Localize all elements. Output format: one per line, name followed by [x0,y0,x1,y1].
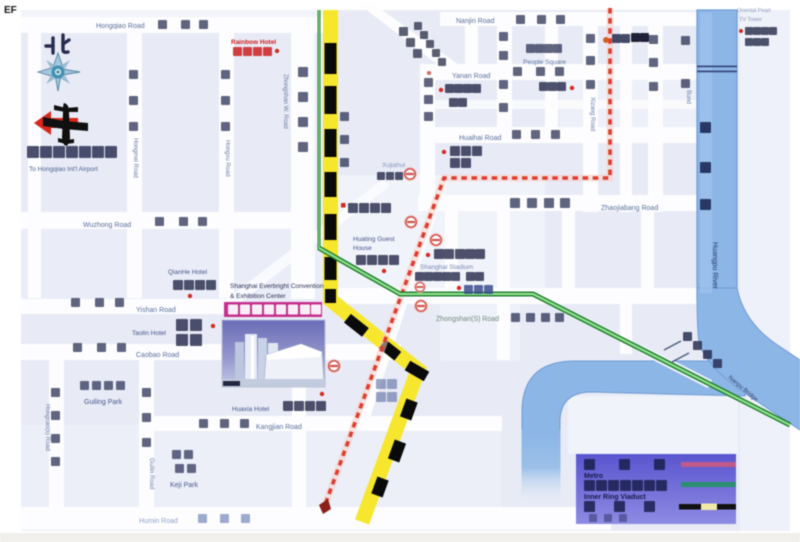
svg-text:Bund: Bund [685,90,691,104]
svg-text:EF: EF [4,5,17,16]
svg-text:Zhongshan(S) Road: Zhongshan(S) Road [436,316,499,323]
svg-text:Humin Road: Humin Road [139,518,178,525]
svg-text:Metro: Metro [584,473,603,480]
svg-text:Kangjian Road: Kangjian Road [256,424,302,431]
svg-text:Taolin Hotel: Taolin Hotel [132,330,167,337]
svg-text:Caobao Road: Caobao Road [136,352,179,359]
svg-text:Xizang Road: Xizang Road [589,97,595,131]
svg-text:Guilin Road: Guilin Road [148,458,154,489]
svg-text:Huangpu River: Huangpu River [711,242,718,289]
svg-text:Shanghai Stadium: Shanghai Stadium [420,264,473,271]
svg-text:Hongqiao Road: Hongqiao Road [96,23,145,30]
svg-text:Hongcao(s) Road: Hongcao(s) Road [44,404,50,451]
svg-text:& Exhibition Center: & Exhibition Center [230,293,286,300]
svg-text:Huating Guest: Huating Guest [353,236,395,243]
svg-text:Shanghai Everbright Convention: Shanghai Everbright Convention [230,283,324,290]
svg-text:Wuzhong Road: Wuzhong Road [83,222,131,229]
svg-text:Yanan Road: Yanan Road [452,73,491,80]
svg-text:Yishan Road: Yishan Road [136,307,176,314]
svg-text:To Hongqiao Int'l Airport: To Hongqiao Int'l Airport [29,166,98,173]
svg-text:Nanjin Road: Nanjin Road [456,18,495,25]
svg-text:Xujiahui: Xujiahui [382,162,405,169]
svg-text:QianHe Hotel: QianHe Hotel [168,269,208,276]
svg-text:People Square: People Square [523,59,566,66]
svg-text:TV Tower: TV Tower [739,17,762,23]
svg-text:House: House [353,245,372,252]
svg-text:Inner Ring Viaduct: Inner Ring Viaduct [584,494,646,501]
svg-text:Hongxu Road: Hongxu Road [224,140,230,177]
svg-text:Huaxia Hotel: Huaxia Hotel [232,406,270,413]
svg-text:Hongmei Road: Hongmei Road [132,138,138,178]
svg-text:Guiling Park: Guiling Park [84,399,123,406]
svg-text:Zhongshan W. Road: Zhongshan W. Road [282,74,288,129]
svg-text:Rainbow Hotel: Rainbow Hotel [231,39,276,46]
svg-text:Oriental Pearl: Oriental Pearl [737,8,771,14]
svg-text:Huaihai Road: Huaihai Road [459,135,502,142]
svg-text:Keji Park: Keji Park [170,482,199,489]
svg-text:Zhaojiabang Road: Zhaojiabang Road [601,205,658,212]
